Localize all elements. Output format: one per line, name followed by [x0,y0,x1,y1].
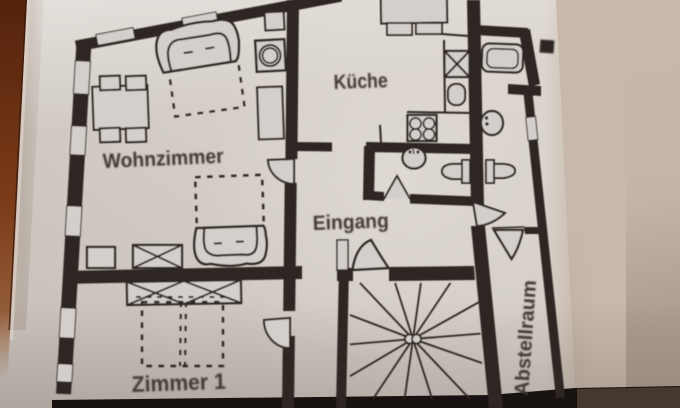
svg-text:Zimmer 1: Zimmer 1 [131,369,226,397]
svg-text:Eingang: Eingang [312,209,389,235]
svg-text:Küche: Küche [333,69,388,94]
